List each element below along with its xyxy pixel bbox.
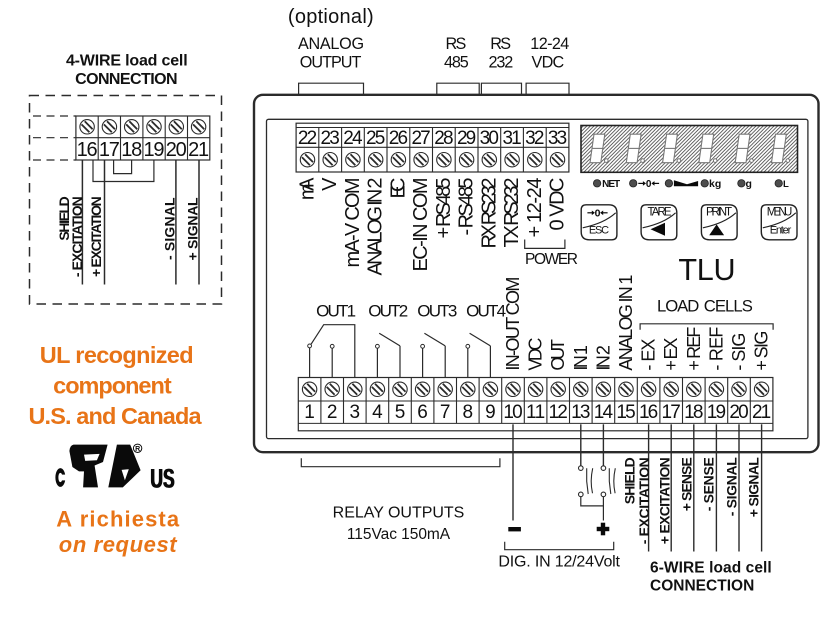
- svg-text:18: 18: [121, 139, 142, 161]
- svg-text:- EXCITATION: - EXCITATION: [636, 457, 652, 544]
- svg-text:11: 11: [526, 402, 545, 423]
- svg-text:8: 8: [463, 402, 474, 423]
- svg-text:6-WIRE load cell: 6-WIRE load cell: [650, 559, 772, 576]
- svg-text:UL recognized: UL recognized: [40, 342, 194, 368]
- svg-text:- SENSE: - SENSE: [701, 457, 717, 511]
- svg-text:21: 21: [188, 139, 209, 161]
- svg-text:1: 1: [304, 402, 315, 423]
- svg-text:on request: on request: [59, 532, 178, 557]
- svg-text:PRINT: PRINT: [706, 207, 732, 219]
- svg-text:RX RS232: RX RS232: [478, 178, 500, 249]
- svg-text:TX RS232: TX RS232: [501, 178, 523, 248]
- svg-text:+ EXCITATION: + EXCITATION: [88, 196, 104, 277]
- svg-text:VDC: VDC: [526, 338, 546, 371]
- svg-text:15: 15: [616, 402, 635, 423]
- svg-text:CONNECTION: CONNECTION: [75, 71, 177, 88]
- svg-text:Enter: Enter: [770, 225, 792, 237]
- svg-text:21: 21: [752, 402, 771, 423]
- svg-text:+ EX: + EX: [661, 338, 681, 371]
- svg-text:17: 17: [662, 402, 681, 423]
- svg-text:IN 1: IN 1: [571, 345, 591, 371]
- svg-text:- SIG: - SIG: [729, 333, 749, 371]
- svg-text:A richiesta: A richiesta: [56, 507, 180, 532]
- svg-text:3: 3: [350, 402, 361, 423]
- svg-text:- EXCITATION: - EXCITATION: [69, 196, 85, 277]
- svg-text:LOAD: LOAD: [657, 297, 699, 316]
- svg-text:6: 6: [417, 402, 428, 423]
- svg-text:DIG. IN 12/24Volt: DIG. IN 12/24Volt: [498, 554, 620, 571]
- svg-text:13: 13: [571, 402, 590, 423]
- svg-text:24: 24: [343, 128, 363, 149]
- svg-text:ANALOG IN 2: ANALOG IN 2: [365, 178, 387, 276]
- svg-text:33: 33: [548, 128, 567, 149]
- svg-text:27: 27: [411, 128, 430, 149]
- svg-text:29: 29: [457, 128, 476, 149]
- svg-text:NET: NET: [602, 179, 620, 190]
- svg-text:- SIGNAL: - SIGNAL: [162, 197, 178, 260]
- svg-text:EC: EC: [387, 178, 409, 199]
- svg-text:232: 232: [489, 53, 514, 71]
- svg-text:+ REF: + REF: [684, 327, 704, 371]
- svg-text:485: 485: [444, 53, 469, 71]
- svg-text:10: 10: [503, 402, 522, 423]
- svg-text:US: US: [151, 464, 175, 494]
- svg-text:MENU: MENU: [767, 207, 793, 219]
- svg-text:+ SENSE: + SENSE: [679, 457, 695, 511]
- svg-text:9: 9: [485, 402, 496, 423]
- svg-text:g: g: [746, 178, 752, 190]
- svg-text:+ SIG: + SIG: [752, 331, 772, 371]
- svg-text:12: 12: [549, 402, 568, 423]
- svg-text:28: 28: [434, 128, 453, 149]
- svg-text:20: 20: [166, 139, 187, 161]
- svg-text:26: 26: [389, 128, 408, 149]
- svg-text:OUT3: OUT3: [417, 302, 457, 321]
- svg-text:V: V: [319, 177, 341, 191]
- svg-text:22: 22: [298, 128, 317, 149]
- svg-text:0: 0: [595, 207, 601, 219]
- svg-text:OUT: OUT: [548, 339, 568, 371]
- svg-text:U.S. and Canada: U.S. and Canada: [28, 403, 202, 429]
- svg-text:- EX: - EX: [639, 339, 659, 371]
- svg-text:0 VDC: 0 VDC: [547, 178, 569, 231]
- svg-text:(optional): (optional): [288, 6, 374, 28]
- svg-text:4-WIRE load cell: 4-WIRE load cell: [66, 53, 188, 70]
- svg-text:CELLS: CELLS: [704, 297, 753, 316]
- svg-text:+ 12-24: + 12-24: [524, 178, 546, 238]
- svg-text:+ SIGNAL: + SIGNAL: [184, 197, 200, 261]
- svg-text:ESC: ESC: [589, 225, 609, 237]
- svg-text:+ EXCITATION: + EXCITATION: [656, 457, 672, 544]
- svg-text:2: 2: [327, 402, 338, 423]
- svg-text:19: 19: [707, 402, 726, 423]
- svg-text:POWER: POWER: [525, 251, 578, 268]
- svg-text:+ RS485: + RS485: [433, 178, 455, 239]
- svg-text:16: 16: [639, 402, 658, 423]
- svg-text:TLU: TLU: [678, 253, 735, 287]
- svg-text:- SIGNAL: - SIGNAL: [724, 457, 740, 516]
- svg-text:EC-IN COM: EC-IN COM: [410, 178, 432, 272]
- svg-text:kg: kg: [709, 178, 721, 190]
- svg-text:ANALOG IN 1: ANALOG IN 1: [616, 275, 636, 371]
- svg-text:18: 18: [684, 402, 703, 423]
- svg-text:R: R: [135, 446, 140, 453]
- svg-text:23: 23: [321, 128, 340, 149]
- svg-text:IN-OUT COM: IN-OUT COM: [503, 277, 523, 371]
- svg-text:17: 17: [99, 139, 120, 161]
- svg-text:115Vac 150mA: 115Vac 150mA: [347, 526, 451, 543]
- svg-text:ANALOG: ANALOG: [298, 35, 364, 53]
- svg-text:RELAY OUTPUTS: RELAY OUTPUTS: [333, 505, 465, 522]
- svg-text:IN 2: IN 2: [593, 345, 613, 371]
- svg-text:VDC: VDC: [532, 53, 565, 71]
- svg-text:7: 7: [440, 402, 451, 423]
- svg-text:4: 4: [372, 402, 383, 423]
- svg-text:19: 19: [144, 139, 165, 161]
- svg-text:30: 30: [480, 128, 499, 149]
- svg-text:OUT4: OUT4: [466, 302, 506, 321]
- svg-text:5: 5: [395, 402, 406, 423]
- svg-text:31: 31: [502, 128, 521, 149]
- svg-text:CONNECTION: CONNECTION: [650, 577, 754, 594]
- svg-text:- RS485: - RS485: [456, 178, 478, 236]
- svg-text:RS: RS: [490, 35, 511, 53]
- svg-text:0: 0: [646, 179, 652, 190]
- svg-text:mA: mA: [297, 177, 319, 200]
- svg-text:20: 20: [729, 402, 748, 423]
- svg-text:OUT1: OUT1: [316, 302, 356, 321]
- svg-text:16: 16: [77, 139, 98, 161]
- svg-text:RS: RS: [446, 35, 467, 53]
- svg-text:OUTPUT: OUTPUT: [300, 53, 362, 71]
- svg-text:OUT2: OUT2: [368, 302, 408, 321]
- svg-text:12-24: 12-24: [530, 35, 569, 53]
- svg-text:mA-V COM: mA-V COM: [342, 178, 364, 268]
- svg-text:L: L: [783, 179, 789, 190]
- svg-text:component: component: [53, 373, 172, 399]
- svg-text:- REF: - REF: [706, 327, 726, 371]
- svg-text:32: 32: [525, 128, 544, 149]
- svg-text:14: 14: [594, 402, 614, 423]
- svg-text:TARE: TARE: [648, 207, 672, 219]
- svg-text:+ SIGNAL: + SIGNAL: [746, 457, 762, 517]
- svg-text:25: 25: [366, 128, 385, 149]
